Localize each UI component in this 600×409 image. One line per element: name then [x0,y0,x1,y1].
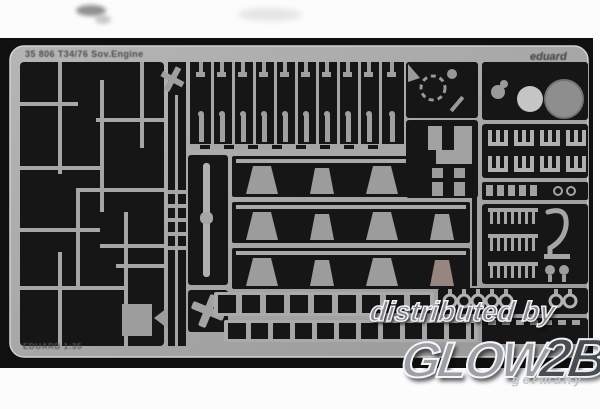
watermark-distributed-by: distributed by [368,296,556,328]
mini-ladder-strip [482,182,588,200]
product-photo: 35 806 T34/76 Sov.Engine eduard EDUARD 1… [0,0,600,409]
paper-smudge [238,8,302,21]
left-parts-maze [20,62,180,346]
crown-parts-panel [482,124,588,178]
light-disc-part [517,86,543,112]
paper-smudge [95,15,111,24]
curved-part-panel [406,62,478,118]
long-part-box [188,155,228,285]
fan-disc-part [545,80,583,118]
watermark-country: germany [512,372,584,387]
fret-scale-label: EDUARD 1:35 [23,342,82,351]
right-combs-panel [482,204,588,284]
comb-strips-panel [190,62,404,150]
eduard-brand-text: eduard [530,51,567,63]
fret-set-label: 35 806 T34/76 Sov.Engine [25,49,144,59]
grey-square-part [122,304,152,336]
u-bracket-panel [406,120,478,198]
discs-panel [482,62,588,120]
